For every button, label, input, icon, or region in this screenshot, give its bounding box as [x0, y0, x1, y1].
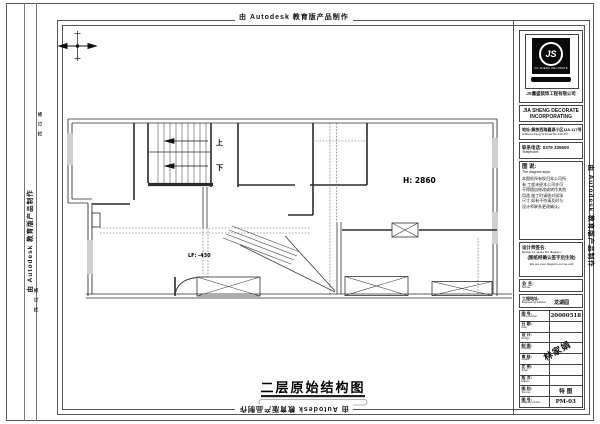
site-label-en: Engineering address: [522, 301, 581, 304]
table-row: 比 例:Scale: [520, 364, 582, 375]
titleblock-owner: 业 主: Name: [519, 279, 583, 292]
notes-title-en: The diagram says: [522, 170, 581, 175]
autodesk-banner-bottom: 由 Autodesk 教育版产品制作 [235, 404, 353, 414]
autodesk-banner-left: 由 Autodesk 教育版产品制作 [24, 176, 34, 306]
logo-subtext: JIA SHENG DECORATE [534, 67, 568, 70]
floor-plan: 上 下 H: 2860 LF: -430 二层原始结构图 [0, 0, 600, 424]
slope-hatch [223, 226, 335, 292]
site-value: 龙湖园 [554, 299, 569, 306]
row-value: PM-03 [550, 397, 583, 407]
address-cn: 地址:解放西路鑫源小区118-117号 [522, 127, 581, 132]
wall-stub [92, 213, 100, 227]
autodesk-banner-right: 由 Autodesk 教育版产品制作 [587, 151, 597, 281]
row-value [550, 376, 583, 386]
phone-en: Telephone: [522, 150, 581, 155]
drawing-sheet: 由 Autodesk 教育版产品制作 由 Autodesk 教育版产品制作 由 … [0, 0, 600, 424]
row-label-en: Plans number: [522, 316, 549, 319]
notes-line: 设计师联系更改确认。 [522, 204, 581, 210]
stair-down-label: 下 [216, 164, 223, 172]
titleblock-company-en: JIA SHENG DECORATE INCORPORATING [519, 105, 583, 122]
stair-up-label: 上 [216, 138, 223, 147]
table-row: 日 期:Date: [520, 321, 582, 332]
titleblock-phone: 联系电话: 0379 335500 Telephone: [519, 142, 583, 159]
table-row: 图 号:Diagram number: PM-03 [520, 396, 582, 407]
stair-arrows [165, 139, 208, 169]
logo-bar [531, 77, 571, 82]
logo-frame: JS JIA SHENG DECORATE [525, 34, 579, 89]
titleblock-notes: 图 说: The diagram says: 本图纸所有权归本公司所 有,工程未… [519, 161, 583, 240]
thin-partitions [203, 187, 341, 294]
row-label-en: Date: [522, 327, 549, 330]
row-value: 20000518 [550, 311, 583, 321]
autodesk-banner-top: 由 Autodesk 教育版产品制作 [235, 12, 353, 22]
table-row: 图 号:Plans number: 20000518 [520, 311, 582, 321]
company-name-cn: JS嘉盛装饰工程有限公司 [520, 91, 582, 97]
table-row: 图 别:Species: 特 图 [520, 385, 582, 396]
titleblock-logo-section: JS JIA SHENG DECORATE JS嘉盛装饰工程有限公司 [519, 30, 583, 103]
sign-bold-line: (图纸经确认签字后生效) [522, 254, 581, 262]
logo-emblem-icon: JS [539, 42, 563, 66]
logo-monogram: JS [545, 50, 556, 59]
row-label-en: Design: [522, 338, 549, 341]
owner-label-en: Name: [522, 286, 581, 290]
row-value: 特 图 [550, 386, 583, 396]
row-label-en: Scale: [522, 370, 549, 373]
row-value [550, 365, 583, 375]
table-row: 版 次:Edition: [520, 375, 582, 386]
row-label-en: Diagram number: [522, 402, 549, 405]
compass-icon [59, 31, 96, 61]
level-label: LF: -430 [188, 253, 211, 259]
stair-treads [158, 123, 206, 183]
titleblock-address: 地址:解放西路鑫源小区118-117号 Address:Fang W Road … [519, 124, 583, 140]
plan-title: 二层原始结构图 [260, 380, 365, 396]
room-height-label: H: 2860 [403, 176, 436, 185]
revision-column-label-top: 修 订 栏 [37, 112, 43, 138]
company-en-line2: INCORPORATING [520, 114, 582, 120]
titleblock-signature: 设计师签名: Design for about the diagram: (图纸… [519, 242, 583, 277]
row-label-en: Edition: [522, 381, 549, 384]
address-en: Address:Fang W Road No.118-117 [522, 132, 581, 136]
sign-small-line: We are over diagram our we and [522, 262, 581, 266]
window-glyphs [68, 133, 497, 274]
crossed-openings [175, 223, 492, 296]
company-logo: JS JIA SHENG DECORATE [532, 38, 570, 74]
interior-walls [92, 123, 497, 296]
titleblock-site: 工程地址: Engineering address: 龙湖园 [519, 294, 583, 308]
dotted-lines [100, 123, 478, 294]
plan-title-underline [261, 395, 365, 397]
row-label-en: Species: [522, 392, 549, 395]
